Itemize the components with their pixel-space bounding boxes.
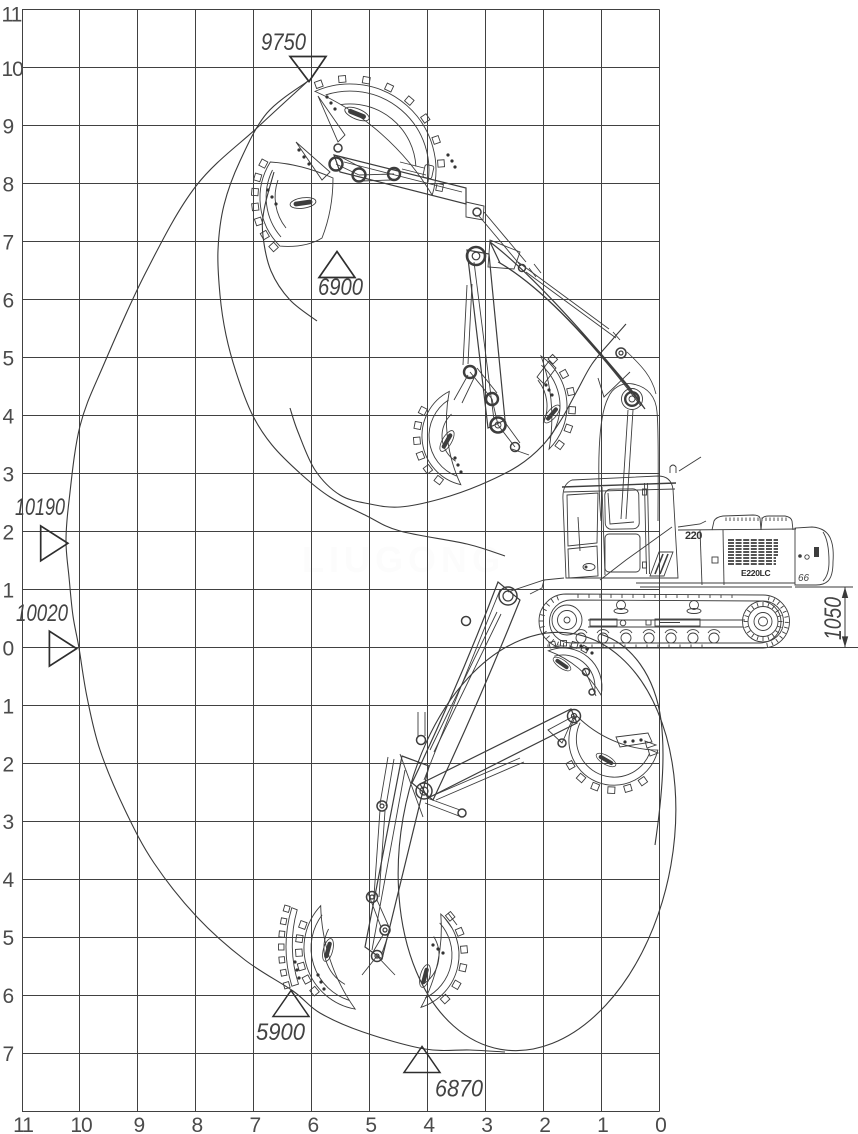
svg-text:6: 6 <box>3 290 14 313</box>
svg-text:3: 3 <box>3 464 14 487</box>
svg-text:2: 2 <box>3 753 14 776</box>
svg-text:10190: 10190 <box>15 494 65 521</box>
svg-text:5900: 5900 <box>256 1019 306 1046</box>
svg-text:10: 10 <box>2 58 24 81</box>
svg-text:1: 1 <box>3 695 14 718</box>
svg-text:6: 6 <box>307 1114 318 1134</box>
svg-text:4: 4 <box>3 869 15 892</box>
svg-text:66: 66 <box>798 573 810 584</box>
svg-text:11: 11 <box>2 3 22 26</box>
svg-text:8: 8 <box>3 174 14 197</box>
svg-text:9: 9 <box>3 116 14 139</box>
svg-text:6900: 6900 <box>318 274 364 301</box>
svg-text:5: 5 <box>3 348 14 371</box>
svg-text:LIUGONG: LIUGONG <box>302 539 505 580</box>
svg-text:2: 2 <box>3 521 14 544</box>
svg-text:3: 3 <box>3 811 14 834</box>
svg-text:10020: 10020 <box>16 600 68 627</box>
svg-text:1050: 1050 <box>820 596 847 640</box>
svg-text:5: 5 <box>3 927 14 950</box>
svg-text:9: 9 <box>134 1114 145 1134</box>
svg-text:E220LC: E220LC <box>741 568 771 578</box>
svg-text:4: 4 <box>3 406 15 429</box>
svg-text:7: 7 <box>3 1043 14 1066</box>
svg-text:6: 6 <box>3 985 14 1008</box>
svg-text:1: 1 <box>597 1114 608 1134</box>
svg-text:2: 2 <box>539 1114 550 1134</box>
svg-text:0: 0 <box>3 637 14 660</box>
svg-text:1: 1 <box>3 579 14 602</box>
svg-text:0: 0 <box>655 1114 666 1134</box>
svg-text:9750: 9750 <box>261 29 307 56</box>
svg-text:6870: 6870 <box>435 1076 484 1103</box>
svg-text:7: 7 <box>249 1114 260 1134</box>
svg-text:5: 5 <box>365 1114 376 1134</box>
svg-text:7: 7 <box>3 232 14 255</box>
svg-text:10: 10 <box>70 1114 92 1134</box>
svg-text:4: 4 <box>423 1114 435 1134</box>
svg-text:11: 11 <box>13 1114 33 1134</box>
svg-text:3: 3 <box>481 1114 492 1134</box>
svg-text:8: 8 <box>192 1114 203 1134</box>
